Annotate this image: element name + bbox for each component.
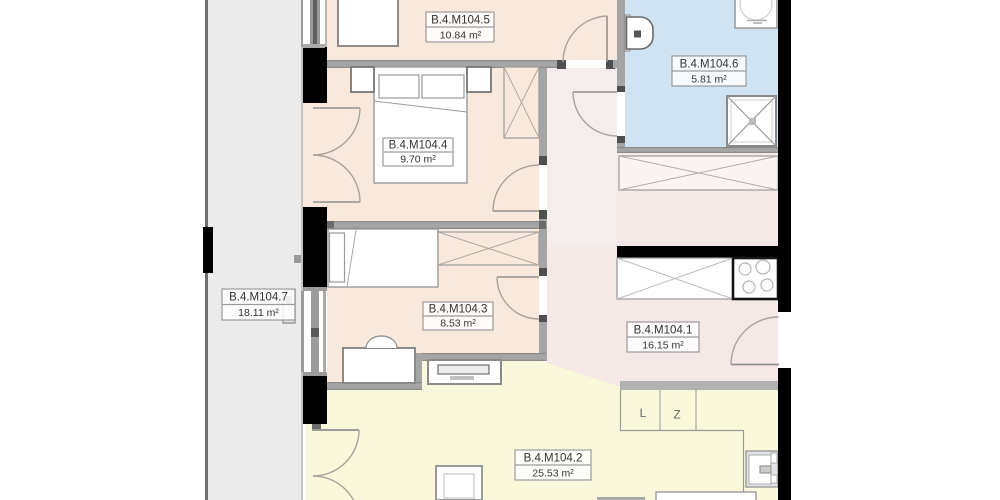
svg-text:B.4.M104.6: B.4.M104.6: [680, 59, 739, 71]
svg-text:10.84 m²: 10.84 m²: [440, 30, 482, 42]
svg-text:B.4.M104.4: B.4.M104.4: [389, 140, 448, 152]
svg-text:Z: Z: [673, 408, 680, 422]
svg-text:L: L: [640, 406, 647, 420]
svg-text:B.4.M104.1: B.4.M104.1: [634, 325, 693, 337]
svg-text:B.4.M104.2: B.4.M104.2: [524, 453, 583, 465]
svg-text:16.15 m²: 16.15 m²: [642, 340, 684, 352]
svg-text:8.53 m²: 8.53 m²: [440, 318, 476, 330]
svg-text:B.4.M104.3: B.4.M104.3: [429, 304, 488, 316]
svg-text:5.81 m²: 5.81 m²: [691, 74, 727, 86]
svg-text:9.70 m²: 9.70 m²: [400, 154, 436, 166]
svg-text:18.11 m²: 18.11 m²: [238, 307, 279, 319]
svg-text:B.4.M104.5: B.4.M104.5: [431, 15, 490, 27]
svg-text:B.4.M104.7: B.4.M104.7: [229, 292, 288, 304]
svg-text:25.53 m²: 25.53 m²: [532, 468, 574, 480]
